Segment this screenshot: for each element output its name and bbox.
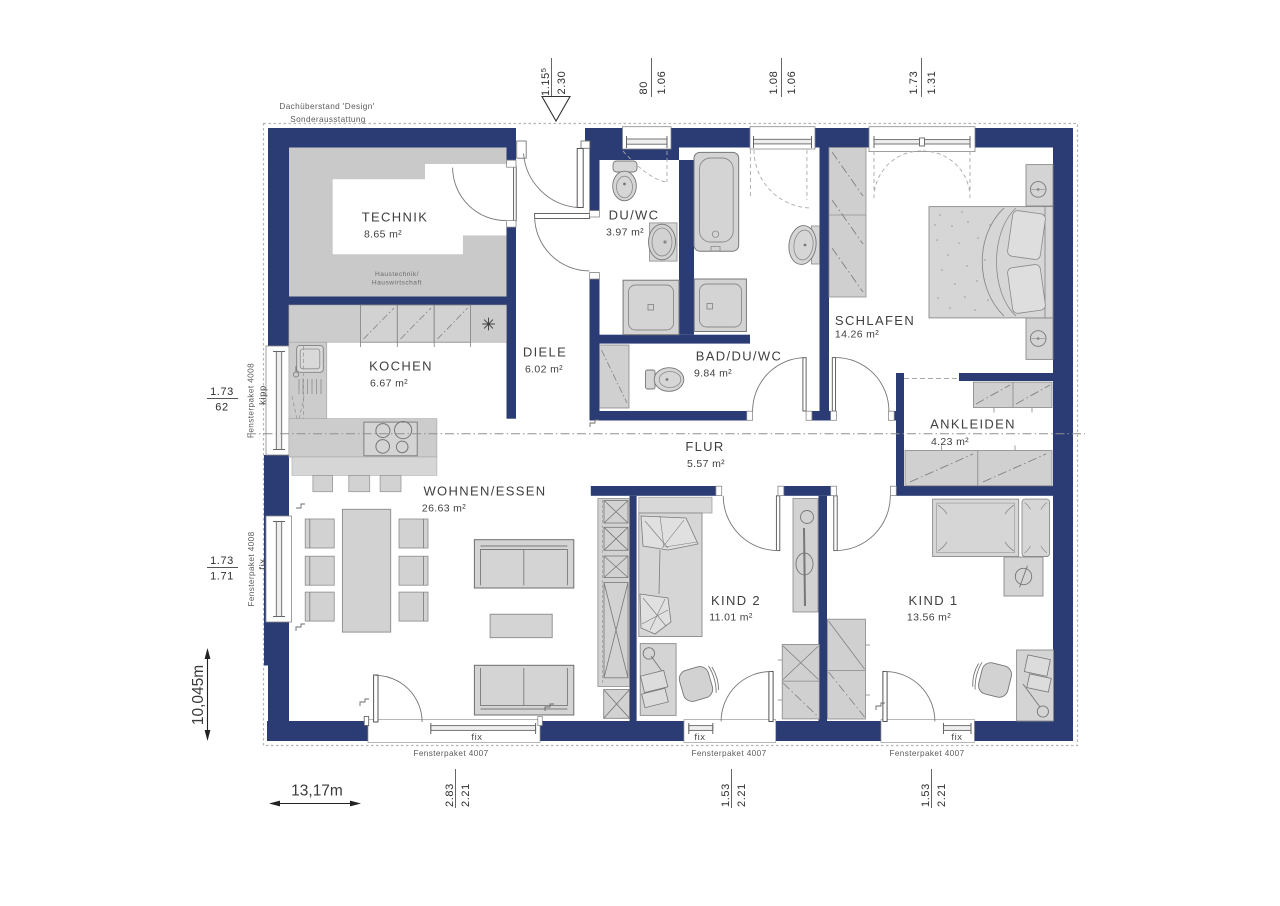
svg-text:ANKLEIDEN: ANKLEIDEN [930, 417, 1016, 432]
svg-text:1.53: 1.53 [720, 783, 732, 807]
svg-text:2.30: 2.30 [556, 71, 568, 95]
svg-text:8.65 m²: 8.65 m² [364, 229, 402, 241]
svg-text:kipp: kipp [258, 385, 269, 405]
svg-text:BAD/DU/WC: BAD/DU/WC [696, 349, 783, 364]
svg-text:Sonderausstattung: Sonderausstattung [290, 115, 366, 124]
svg-text:5.57 m²: 5.57 m² [687, 458, 725, 470]
svg-text:Fensterpaket 4008: Fensterpaket 4008 [247, 531, 256, 606]
svg-text:SCHLAFEN: SCHLAFEN [835, 313, 915, 328]
svg-text:fix: fix [258, 558, 269, 569]
svg-text:2.21: 2.21 [460, 783, 472, 807]
svg-text:1.08: 1.08 [768, 71, 780, 95]
svg-text:6.67 m²: 6.67 m² [370, 378, 408, 390]
svg-text:26.63 m²: 26.63 m² [422, 503, 466, 515]
svg-text:Hauswirtschaft: Hauswirtschaft [372, 280, 422, 287]
svg-text:KIND 1: KIND 1 [908, 593, 958, 608]
svg-text:1.31: 1.31 [926, 71, 938, 95]
svg-text:Dachüberstand 'Design': Dachüberstand 'Design' [279, 102, 374, 111]
svg-text:11.01 m²: 11.01 m² [709, 612, 753, 624]
svg-text:13.56 m²: 13.56 m² [907, 612, 951, 624]
svg-text:Fensterpaket 4007: Fensterpaket 4007 [691, 749, 766, 758]
svg-text:1.73: 1.73 [908, 71, 920, 95]
svg-text:WOHNEN/ESSEN: WOHNEN/ESSEN [423, 484, 546, 499]
svg-text:2.83: 2.83 [444, 783, 456, 807]
svg-text:1.73: 1.73 [210, 386, 234, 398]
svg-text:80: 80 [638, 81, 650, 94]
svg-text:62: 62 [215, 402, 228, 414]
svg-text:1.06: 1.06 [656, 71, 668, 95]
svg-text:FLUR: FLUR [685, 439, 724, 454]
svg-text:Fensterpaket 4007: Fensterpaket 4007 [413, 749, 488, 758]
svg-text:TECHNIK: TECHNIK [362, 210, 429, 225]
svg-text:DIELE: DIELE [523, 345, 567, 360]
svg-text:fix: fix [951, 732, 962, 743]
svg-text:1.71: 1.71 [210, 571, 234, 583]
svg-text:1.06: 1.06 [786, 71, 798, 95]
svg-text:14.26 m²: 14.26 m² [835, 329, 879, 341]
svg-text:fix: fix [694, 732, 705, 743]
svg-text:1.53: 1.53 [920, 783, 932, 807]
svg-text:fix: fix [471, 732, 482, 743]
svg-text:Fensterpaket 4007: Fensterpaket 4007 [889, 749, 964, 758]
svg-text:2.21: 2.21 [736, 783, 748, 807]
svg-text:DU/WC: DU/WC [609, 208, 660, 223]
svg-text:2.21: 2.21 [936, 783, 948, 807]
svg-text:1.73: 1.73 [210, 555, 234, 567]
svg-text:3.97 m²: 3.97 m² [606, 227, 644, 239]
svg-text:KOCHEN: KOCHEN [369, 359, 433, 374]
svg-text:6.02 m²: 6.02 m² [525, 364, 563, 376]
svg-text:4.23 m²: 4.23 m² [931, 436, 969, 448]
svg-text:Fensterpaket 4008: Fensterpaket 4008 [247, 363, 256, 438]
svg-text:13,17m: 13,17m [291, 783, 343, 800]
svg-text:Haustechnik/: Haustechnik/ [375, 271, 419, 278]
svg-text:9.84 m²: 9.84 m² [694, 368, 732, 380]
svg-text:10,045m: 10,045m [190, 665, 207, 725]
svg-text:KIND 2: KIND 2 [711, 593, 761, 608]
